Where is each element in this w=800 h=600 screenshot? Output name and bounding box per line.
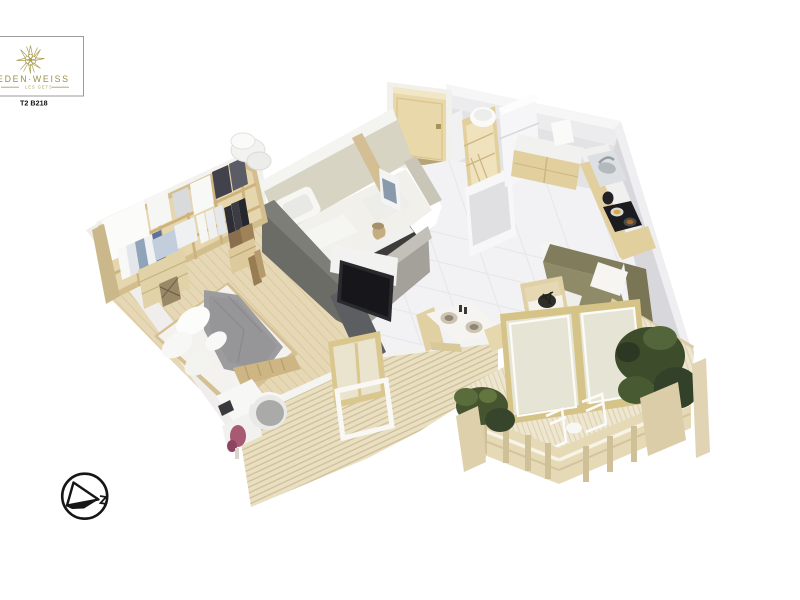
svg-text:EDEN·WEISS: EDEN·WEISS [0,74,70,84]
svg-text:T2 B218: T2 B218 [20,99,48,108]
svg-text:LES GETS: LES GETS [25,85,53,90]
